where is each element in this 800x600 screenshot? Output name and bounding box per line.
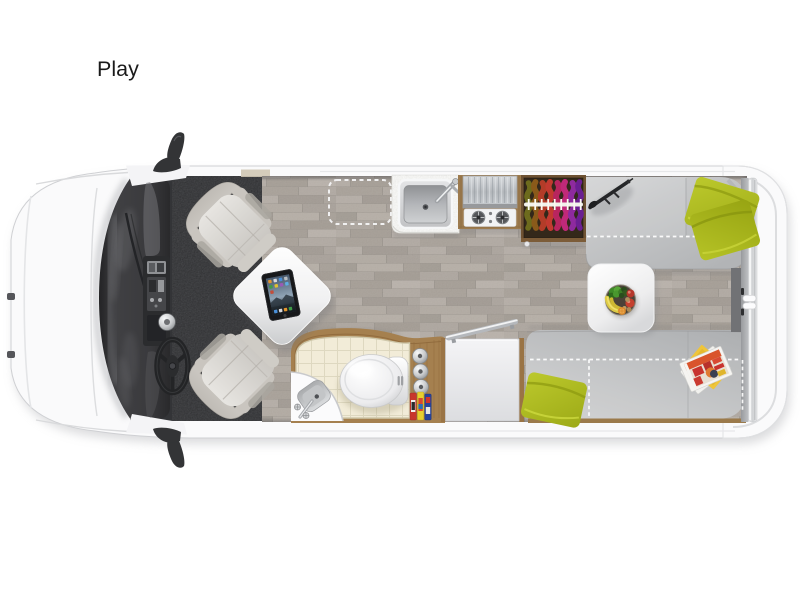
svg-text:Play: Play <box>97 57 139 81</box>
